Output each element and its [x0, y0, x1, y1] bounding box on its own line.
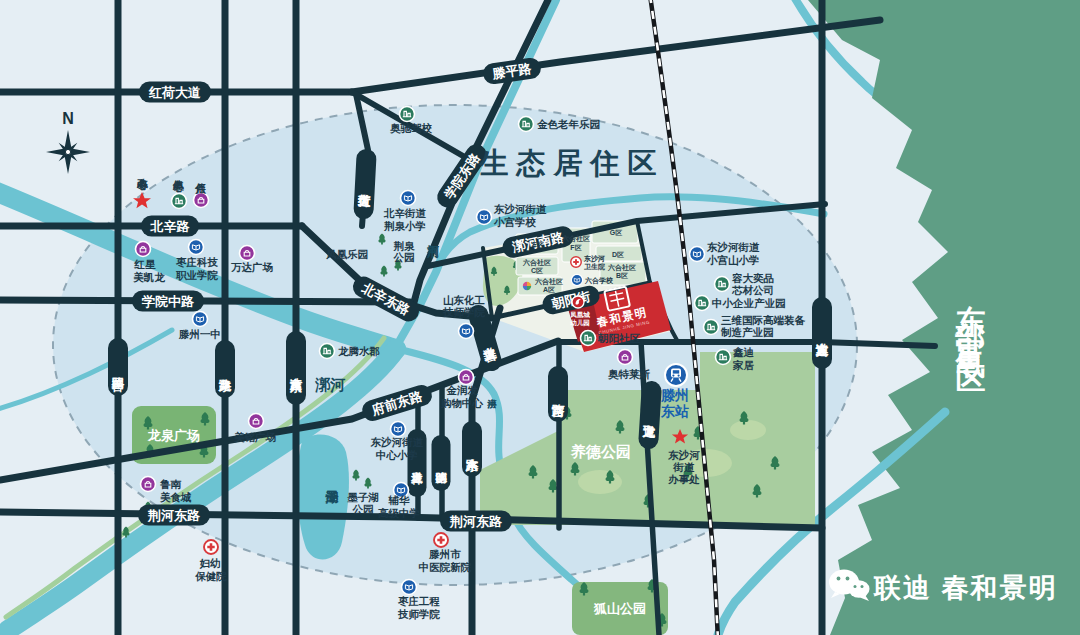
poi-jingquan-school-1: 北辛街道 [383, 207, 427, 219]
poi-chaoyang-community: 朝阳社区 [597, 332, 641, 344]
poi-street-office-2: 街道 [673, 461, 696, 473]
label-hushan-park: 狐山公园 [593, 601, 646, 616]
road-label-xueyuan-mid: 学院中路 [132, 291, 204, 312]
poi-xindi-1: 鑫迪 [733, 346, 755, 358]
poi-kindergarten-1: 凤凰城 [569, 311, 590, 318]
poi-chemical-college-1: 山东化工 [443, 294, 485, 306]
railway-station-icon [665, 364, 687, 386]
poi-engineering-1: 枣庄工程 [397, 595, 441, 607]
label-block-b: B区 [616, 272, 628, 279]
road-label-honghe-v: 红荷大道 [353, 149, 377, 220]
poi-tcm-1: 滕州市 [428, 548, 461, 560]
road-label-jinghe-east-w: 荆河东路 [138, 505, 210, 526]
rongda-icon [715, 277, 730, 292]
xindi-icon [716, 350, 731, 365]
label-block-a: A区 [543, 286, 555, 293]
poi-redstar-2: 美凯龙 [132, 271, 165, 283]
poi-xindi-2: 家居 [732, 359, 755, 371]
road-label-yingbin: 迎宾大道 [812, 297, 832, 369]
poi-lunan-food-1: 鲁南 [160, 478, 182, 490]
label-block-c-prefix: 六合社区 [522, 258, 551, 267]
poi-rtmart-2: 购物中心 [440, 397, 484, 409]
central-primary-icon [391, 422, 406, 437]
poi-zaozhuang-college-1: 枣庄科技 [175, 256, 219, 268]
poi-sanwei-2: 制造产业园 [720, 326, 774, 338]
label-block-b-prefix: 六合社区 [607, 263, 636, 272]
zaozhuang-college-icon [189, 240, 204, 255]
road-label-gonghe: 宫河路 [548, 366, 568, 422]
poi-street-office-1: 东沙河 [667, 449, 700, 461]
poi-rongda-2: 芯材公司 [731, 284, 774, 296]
label-block-d: D区 [612, 251, 624, 258]
poi-jingquan-school-2: 荆泉小学 [383, 220, 426, 232]
label-yangde-park: 养德公园 [570, 443, 631, 460]
tengzhou-no1-school-icon [193, 312, 208, 327]
poi-station-1: 滕州 [660, 387, 689, 403]
tcm-hospital-icon [434, 533, 448, 547]
longteng-icon [320, 344, 335, 359]
poi-phoenix-park: 凤凰乐园 [325, 248, 368, 260]
poi-outlets: 奥特莱斯 [607, 368, 651, 380]
label-guohe: 漷河 [315, 376, 346, 393]
sme-park-icon [695, 296, 710, 311]
poi-liuhe-school: 六合学校 [584, 276, 614, 285]
poi-sme-park: 中小企业产业园 [712, 297, 786, 309]
xiaogongshan-school-icon [690, 247, 705, 262]
maternity-hospital-icon [204, 540, 218, 554]
label-block-a-prefix: 六合社区 [534, 277, 563, 286]
poi-xiaogongshan-1: 东沙河街道 [706, 241, 760, 253]
xiaogong-school-icon [477, 210, 492, 225]
label-mozihu-park-1: 墨子湖 [347, 491, 379, 503]
label-mozihu-park-2: 公园 [352, 503, 374, 515]
engineering-college-icon [402, 580, 417, 595]
road-label-jingtai: 京台高速 [286, 331, 306, 405]
phoenix-kindergarten-icon [572, 296, 584, 308]
road-label-mingde: 明德路 [432, 435, 451, 491]
poi-wanda-plaza: 万达广场 [230, 261, 274, 273]
label-block-f: F区 [570, 244, 581, 251]
road-xueyuan-mid [0, 300, 410, 302]
sports-center-icon [172, 194, 187, 209]
poi-zaozhuang-college-2: 职业学院 [175, 269, 219, 281]
poi-meiming-plaza: 美铭广场 [233, 431, 277, 443]
poi-xiaogong-school-2: 小宫学校 [493, 216, 537, 228]
kindergarten-pinwheel-icon [523, 282, 531, 290]
poi-redstar-1: 红星 [134, 258, 157, 270]
poi-street-office-3: 办事处 [667, 473, 700, 485]
luna-food-icon [141, 477, 156, 492]
liuhe-school-icon [571, 274, 582, 285]
svg-text:荆河东路: 荆河东路 [147, 508, 201, 523]
poi-fuhua-2: 高级中学 [378, 507, 420, 519]
compass-north-label: N [62, 110, 74, 127]
road-label-feilong: 飞龙大道 [638, 380, 662, 449]
health-center-icon [571, 257, 582, 268]
poi-central-primary-1: 东沙河街道 [370, 436, 424, 448]
poi-senior-park: 金色老年乐园 [536, 118, 600, 130]
outlets-icon [618, 350, 633, 365]
poi-sanwei-1: 三维国际高端装备 [721, 314, 806, 326]
poi-maternity-2: 保健院 [194, 570, 227, 582]
meiming-plaza-icon [249, 414, 264, 429]
chaoyang-community-icon [581, 331, 596, 346]
location-map: 春和景明 CHUNHE JING MING 红荷大道 滕平路 北辛路 学院中路 … [0, 0, 1080, 635]
poi-driving-school: 奥驰驾校 [389, 122, 433, 134]
poi-kindergarten-2: 幼儿园 [570, 319, 590, 327]
poi-rtmart-1: 金润发 [445, 384, 478, 396]
rtmart-icon [459, 370, 474, 385]
redstar-macalline-icon [136, 242, 151, 257]
jingquan-school-icon [401, 191, 416, 206]
poi-xiaogongshan-2: 小宫山小学 [706, 254, 760, 266]
label-jingquan-2: 公园 [393, 251, 415, 263]
poi-longteng: 龙腾水郡 [337, 345, 380, 357]
label-block-g: G区 [610, 229, 622, 236]
senior-park-icon [519, 117, 534, 132]
eco-zone-title: 生态居住区 [479, 147, 665, 179]
poi-engineering-2: 技师学院 [397, 608, 441, 620]
poi-fuhua-1: 辅华 [388, 494, 411, 506]
road-label-dongmu: 东木路 [462, 421, 482, 477]
poi-chemical-college-2: 技师学院 [442, 306, 486, 318]
wanda-plaza-icon [240, 246, 255, 261]
lake-mozihu [297, 435, 349, 560]
svg-text:学院中路: 学院中路 [141, 294, 195, 309]
label-block-c: C区 [531, 267, 543, 274]
driving-school-icon [400, 107, 415, 122]
map-canvas: 春和景明 CHUNHE JING MING 红荷大道 滕平路 北辛路 学院中路 … [0, 0, 1080, 635]
chemical-college-icon [459, 324, 474, 339]
poi-health-center-2: 卫生院 [584, 263, 605, 271]
babaiban-icon [194, 193, 209, 208]
poi-tcm-2: 中医院新院 [419, 561, 472, 573]
label-block-e: E区 [532, 241, 544, 248]
label-longquan-square: 龙泉广场 [147, 428, 200, 443]
label-block-f-prefix: 六合社区 [561, 234, 590, 243]
svg-text:荆河东路: 荆河东路 [449, 514, 503, 529]
poi-station-2: 东站 [660, 403, 689, 419]
sanwei-park-icon [704, 320, 719, 335]
road-label-beixin: 北辛路 [141, 216, 199, 237]
road-label-honghe: 红荷大道 [139, 82, 211, 103]
svg-text:北辛路: 北辛路 [150, 219, 191, 234]
poi-maternity-1: 妇幼 [199, 557, 221, 570]
road-label-jinghe-east-e: 荆河东路 [440, 511, 512, 532]
poi-lunan-food-2: 美食城 [159, 491, 192, 503]
poi-xiaogong-school-1: 东沙河街道 [493, 203, 547, 215]
poi-rongda-1: 容大奕品 [731, 272, 774, 284]
road-label-longquan: 龙泉路 [215, 340, 235, 398]
road-label-shanguo: 善国路 [108, 338, 128, 396]
svg-text:红荷大道: 红荷大道 [148, 85, 201, 100]
poi-health-center-1: 东沙河 [583, 254, 605, 263]
footer-brand-text: 联迪 春和景明 [873, 573, 1058, 603]
poi-tengzhou-no1: 滕州一中 [178, 328, 221, 340]
poi-central-primary-2: 中心小学 [376, 449, 418, 461]
